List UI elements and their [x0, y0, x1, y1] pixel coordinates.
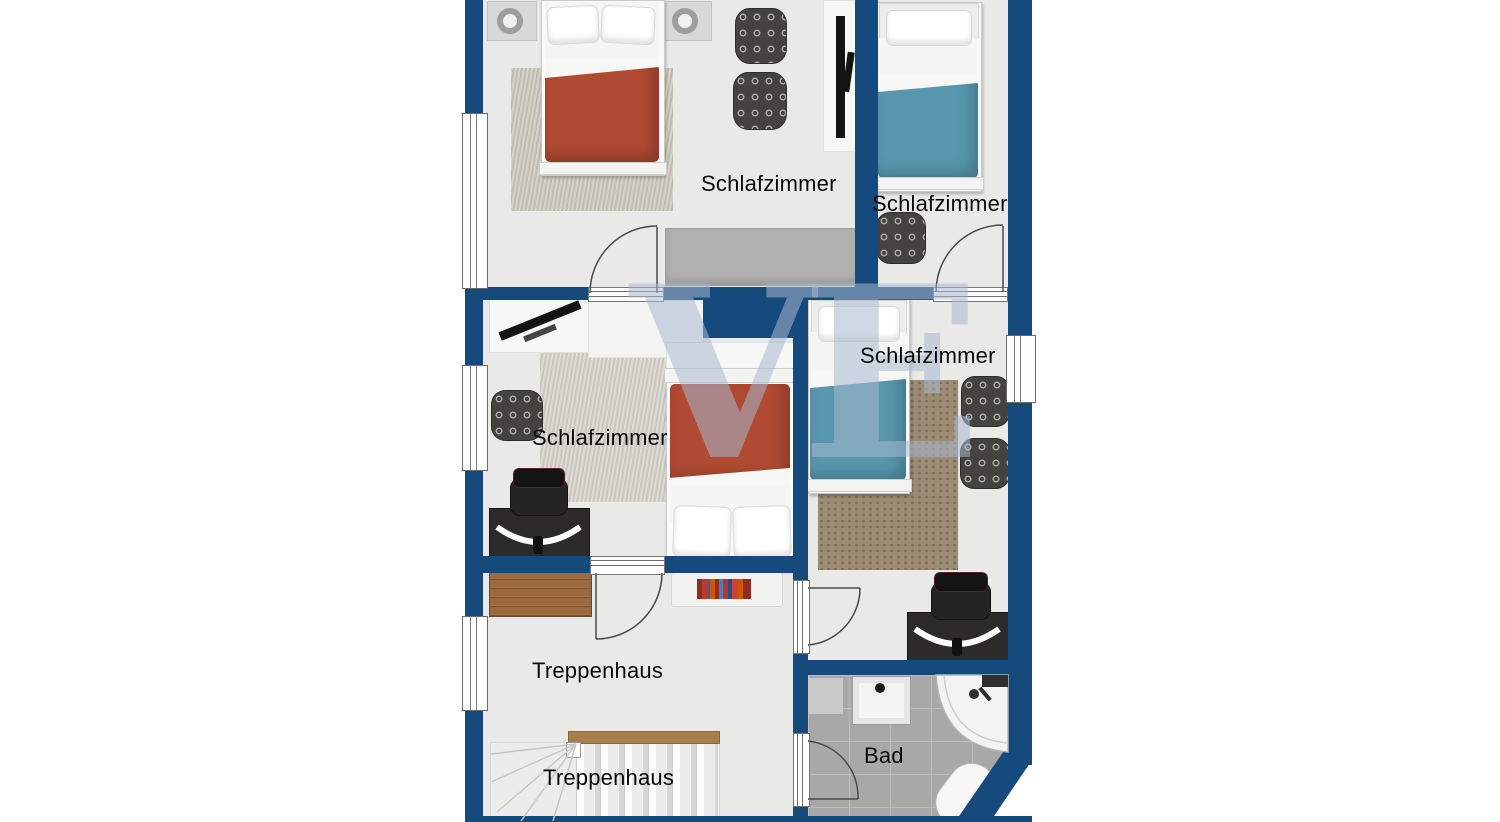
duvet-red [545, 64, 659, 162]
desk [489, 508, 590, 562]
room-label-bedroom-top-left: Schlafzimmer [701, 171, 837, 197]
wall-horizontal [1006, 287, 1032, 300]
bed-footboard [539, 162, 667, 175]
lamp-icon [497, 8, 523, 34]
sideboard [489, 571, 592, 617]
pillow [546, 5, 600, 46]
office-chair [934, 572, 988, 592]
wall-left [465, 468, 483, 618]
wall-left [465, 0, 483, 115]
wall-vertical-main [793, 652, 808, 733]
window [462, 113, 488, 289]
window [462, 365, 488, 471]
duvet-blue [878, 80, 978, 178]
wall-right [1008, 398, 1032, 765]
stairs-newel-post [566, 742, 581, 758]
room-label-bedroom-top-right: Schlafzimmer [872, 191, 1008, 217]
floor-plan: VE Schlafzimmer Schlafzimmer Schlafzimme… [0, 0, 1500, 822]
room-label-bathroom: Bad [864, 743, 904, 769]
pouffe [961, 376, 1010, 427]
window [462, 616, 488, 711]
stairs-handrail [568, 731, 720, 744]
pouffe [733, 72, 787, 130]
wall-left [465, 707, 483, 822]
watermark: VE [630, 268, 968, 482]
bed-footboard [874, 177, 984, 190]
door-bathroom [793, 733, 810, 807]
pouffe [735, 8, 787, 64]
lamp-icon [672, 8, 698, 34]
wall-horizontal [663, 556, 793, 573]
pillow [886, 10, 972, 46]
bath-mat [808, 678, 843, 714]
pillow [600, 5, 656, 46]
door-middle-left-bedroom [590, 556, 665, 575]
faucet-icon [875, 683, 885, 693]
window [1006, 335, 1036, 403]
wall-horizontal [483, 556, 590, 573]
room-label-bedroom-middle-right: Schlafzimmer [860, 343, 996, 369]
room-label-staircase-hall: Treppenhaus [532, 658, 663, 684]
office-chair [513, 468, 565, 488]
wall-bottom [465, 816, 1032, 822]
room-label-bedroom-middle-left: Schlafzimmer [532, 425, 668, 451]
wall-bathroom-top [808, 660, 1032, 675]
room-label-staircase: Treppenhaus [543, 765, 674, 791]
door-middle-right-bedroom [793, 580, 810, 654]
books [697, 579, 751, 599]
